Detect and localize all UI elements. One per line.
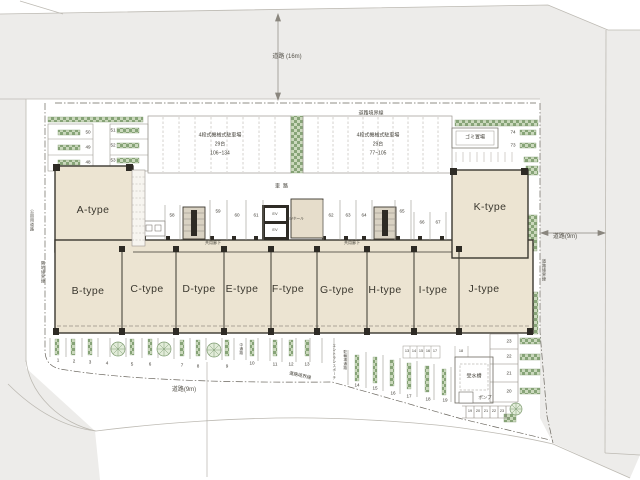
unit-e: E-type (226, 284, 259, 295)
mech-right-name: 4段式機械式駐車場 (357, 134, 400, 139)
spot-58: 58 (169, 214, 174, 219)
se-small-20: 20 (476, 410, 480, 414)
spot-18: 18 (425, 398, 430, 403)
spot-65: 65 (399, 210, 404, 215)
unit-b: B-type (72, 286, 105, 297)
ev-label-1: EV (272, 212, 277, 216)
spot-4: 4 (106, 362, 109, 367)
unit-j: J-type (469, 284, 500, 295)
spot-7: 7 (181, 364, 184, 369)
spot-73: 73 (510, 144, 515, 149)
bike-14: 14 (412, 350, 416, 354)
mech-left-count: 29台 (215, 143, 226, 148)
spot-64: 64 (361, 214, 366, 219)
spot-nw-50: 50 (85, 131, 90, 136)
storage-box (143, 221, 165, 236)
spot-74: 74 (510, 131, 515, 136)
unit-h: H-type (368, 285, 401, 296)
corridor-label-east: 共用廊下 (344, 241, 360, 245)
unit-i: I-type (419, 285, 448, 296)
spot-15: 15 (372, 387, 377, 392)
stair-core-west (183, 207, 205, 239)
spot-10: 10 (249, 362, 254, 367)
mech-left-name: 4段式機械式駐車場 (199, 134, 242, 139)
entrance-porch-label: エントランスポーチ (332, 344, 336, 380)
spot-16: 16 (390, 392, 395, 397)
site-plan-drawing (0, 0, 640, 480)
unit-k: K-type (474, 202, 507, 213)
unit-f: F-type (272, 284, 304, 295)
ev-label-2: EV (272, 228, 277, 232)
unit-c: C-type (130, 284, 163, 295)
spot-12: 12 (288, 363, 293, 368)
spot-63: 63 (345, 214, 350, 219)
spot-61: 61 (253, 214, 258, 219)
ev-hall-label: EVホール (288, 217, 303, 221)
spot-62: 62 (328, 214, 333, 219)
spot-3: 3 (89, 361, 92, 366)
mech-right-range: 77~105 (370, 152, 387, 157)
planting-divider (291, 116, 303, 173)
bike-16: 16 (426, 350, 430, 354)
spot-66: 66 (419, 221, 424, 226)
spot-59: 59 (215, 210, 220, 215)
spot-2: 2 (73, 360, 76, 365)
se-small-19: 19 (468, 410, 472, 414)
spot-17: 17 (406, 395, 411, 400)
se-small-21: 21 (484, 410, 488, 414)
spot-5: 5 (131, 363, 134, 368)
spot-nw-53: 53 (110, 159, 115, 164)
center-passage-label: 中通路 (239, 343, 243, 355)
spot-14: 14 (354, 384, 359, 389)
spot-21: 21 (506, 372, 511, 377)
spot-9: 9 (226, 365, 229, 370)
spot-1: 1 (57, 359, 60, 364)
garbage-station (452, 120, 538, 162)
driveway-label: 車路 (275, 185, 291, 190)
spot-22: 22 (506, 355, 511, 360)
water-tank-label: 受水槽 (466, 375, 481, 380)
se-small-22: 22 (492, 410, 496, 414)
spot-13: 13 (304, 363, 309, 368)
building-footprint (53, 164, 533, 335)
road-label-top: 道路 (16m) (272, 54, 301, 60)
spot-nw-51: 51 (110, 129, 115, 134)
boundary-label-right: 道路境界線 (542, 259, 546, 282)
bike-column (132, 170, 145, 246)
corridor-label-west: 共用廊下 (205, 241, 221, 245)
spot-19: 19 (442, 399, 447, 404)
unit-d: D-type (182, 284, 215, 295)
pump-label: ポンプ (478, 396, 491, 401)
road-label-right: 道路(9m) (553, 234, 577, 240)
south-parking (50, 338, 334, 363)
bike-13: 13 (405, 350, 409, 354)
site-plan: 道路 (16m) 道路(9m) 道路(9m) 道路境界線 道路境界線 道路境界線… (0, 0, 640, 480)
unit-g: G-type (320, 285, 354, 296)
spot-60: 60 (234, 214, 239, 219)
spot-23: 23 (506, 340, 511, 345)
se-small-23: 23 (500, 410, 504, 414)
mech-left-range: 106~134 (210, 152, 230, 157)
bike-17: 17 (433, 350, 437, 354)
bike-passage-label: 駐輪場通路 (343, 350, 347, 370)
unit-a: A-type (77, 205, 110, 216)
spot-11: 11 (273, 363, 278, 368)
stair-core-east (374, 207, 396, 239)
spot-nw-48: 48 (85, 161, 90, 166)
bike-18: 18 (459, 350, 463, 354)
park-road-label: 公園用道路 (30, 209, 34, 232)
spot-nw-52: 52 (110, 144, 115, 149)
spot-67: 67 (435, 221, 440, 226)
garbage-label: ゴミ置場 (465, 136, 485, 141)
spot-8: 8 (197, 365, 200, 370)
spot-6: 6 (149, 363, 152, 368)
neighbor-boundary-label: 隣地境界線 (41, 261, 45, 284)
spot-nw-49: 49 (85, 146, 90, 151)
road-label-bottom: 道路(9m) (172, 387, 196, 393)
boundary-label-top: 道路境界線 (358, 112, 383, 117)
bike-15: 15 (419, 350, 423, 354)
mech-right-count: 29台 (373, 143, 384, 148)
spot-20: 20 (506, 390, 511, 395)
